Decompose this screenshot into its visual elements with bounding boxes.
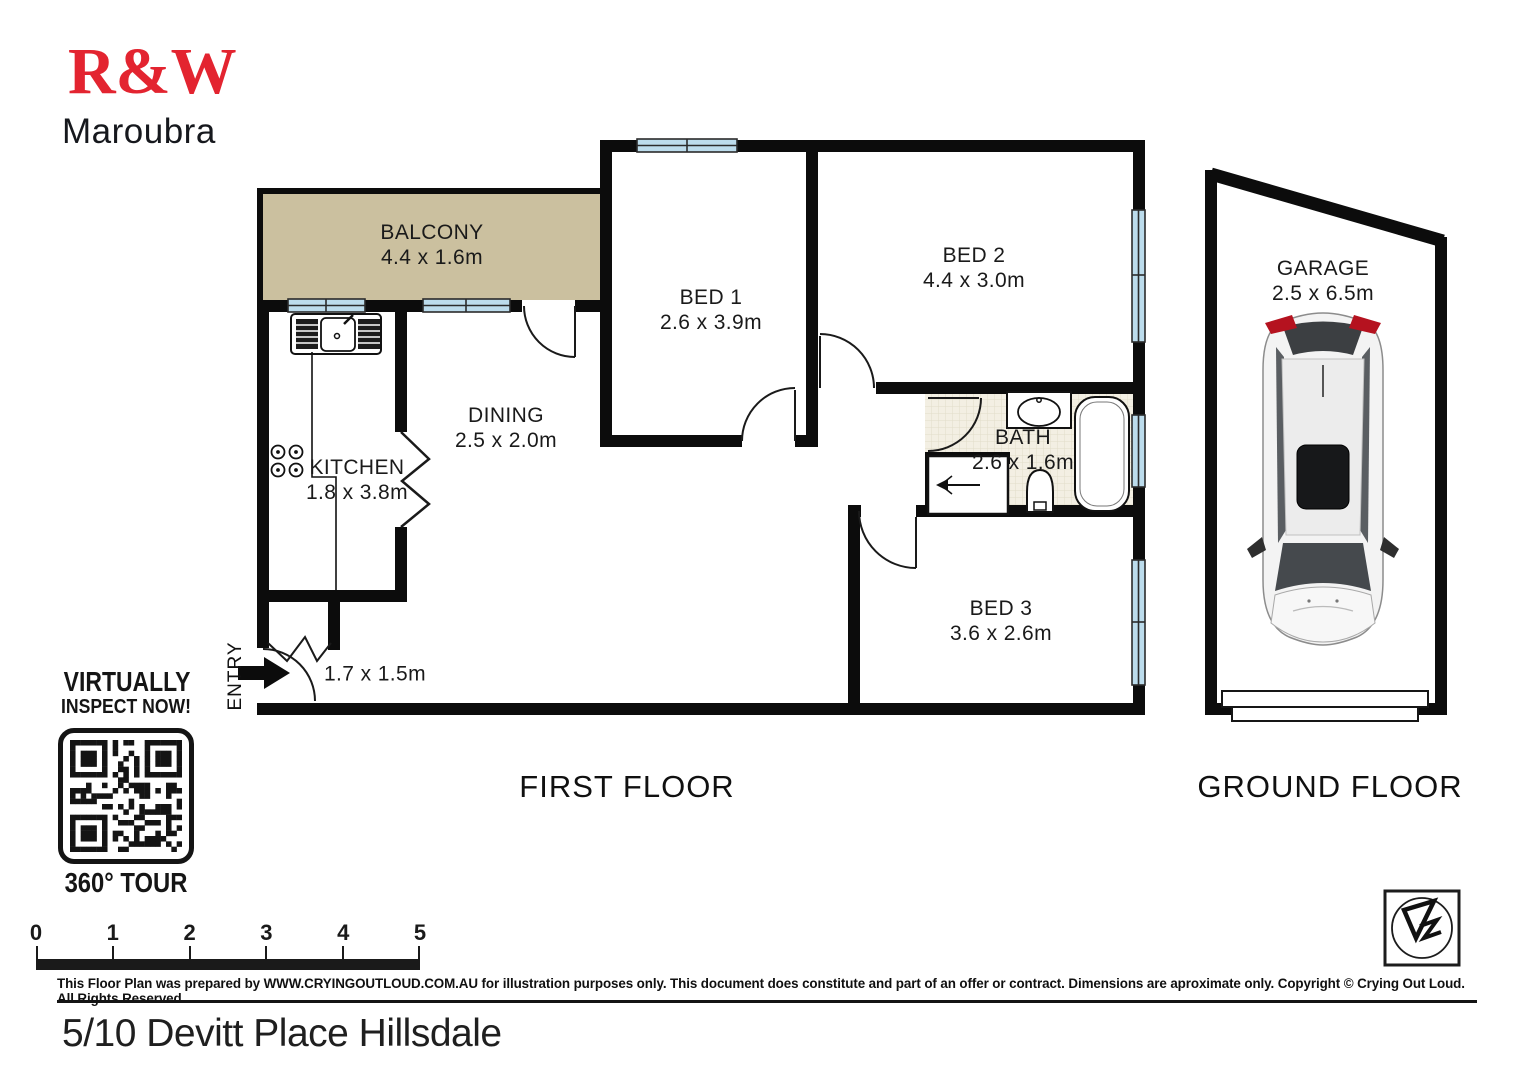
promo-line2: INSPECT NOW!: [59, 696, 193, 718]
promo-line1: VIRTUALLY: [64, 668, 189, 696]
kitchen-sink: [291, 314, 381, 354]
bathtub: [1075, 397, 1129, 511]
window-bed2-icon: [1132, 210, 1145, 342]
north-compass-icon: [1382, 888, 1462, 968]
scale-tick-1: 1: [107, 920, 119, 946]
divider-rule: [57, 1000, 1477, 1003]
property-address: 5/10 Devitt Place Hillsdale: [62, 1012, 502, 1056]
virtual-tour-promo: VIRTUALLY INSPECT NOW! 360° TOUR: [50, 668, 202, 898]
room-label-bed3: BED 33.6 x 2.6m: [950, 596, 1052, 646]
toilet: [1027, 470, 1053, 512]
room-label-bath: BATH2.6 x 1.6m: [972, 425, 1074, 475]
scale-bar: 0 1 2 3 4 5: [36, 922, 420, 972]
entry-label: ENTRY: [225, 641, 247, 710]
window-bed3-icon: [1132, 560, 1145, 685]
scale-tick-3: 3: [260, 920, 272, 946]
room-label-bed1: BED 12.6 x 3.9m: [660, 285, 762, 335]
scale-bar-line: [36, 959, 420, 970]
bath-basin: [1007, 392, 1071, 428]
room-label-kitchen: KITCHEN1.8 x 3.8m: [306, 455, 408, 505]
floorplan-page: R&W Maroubra: [0, 0, 1534, 1084]
room-label-garage: GARAGE2.5 x 6.5m: [1272, 256, 1374, 306]
entry-closet-doors-icon: [268, 637, 331, 661]
scale-tick-5: 5: [414, 920, 426, 946]
scale-tick-2: 2: [183, 920, 195, 946]
first-floor-title: FIRST FLOOR: [519, 769, 734, 805]
scale-tick-4: 4: [337, 920, 349, 946]
window-dining-icon: [423, 299, 510, 312]
room-label-dining: DINING2.5 x 2.0m: [455, 403, 557, 453]
window-kitchen-icon: [288, 299, 365, 312]
ground-floor-title: GROUND FLOOR: [1197, 769, 1462, 805]
car-illustration: [1247, 313, 1399, 645]
tour-label: 360° TOUR: [61, 868, 190, 898]
scale-tick-0: 0: [30, 920, 42, 946]
qr-code: [58, 728, 194, 864]
bed2-door-icon: [820, 334, 874, 388]
garage-door: [1222, 691, 1428, 721]
window-bath-icon: [1132, 415, 1145, 487]
entry-dims-label: 1.7 x 1.5m: [324, 662, 426, 687]
qr-code-pattern: [70, 740, 182, 852]
balcony-door-icon: [524, 306, 575, 357]
bed3-door-icon: [859, 511, 916, 568]
bed1-door-icon: [742, 388, 795, 441]
window-bed1-icon: [637, 139, 737, 152]
stove-cooktop: [272, 446, 303, 477]
room-label-bed2: BED 24.4 x 3.0m: [923, 243, 1025, 293]
room-label-balcony: BALCONY4.4 x 1.6m: [380, 220, 483, 270]
